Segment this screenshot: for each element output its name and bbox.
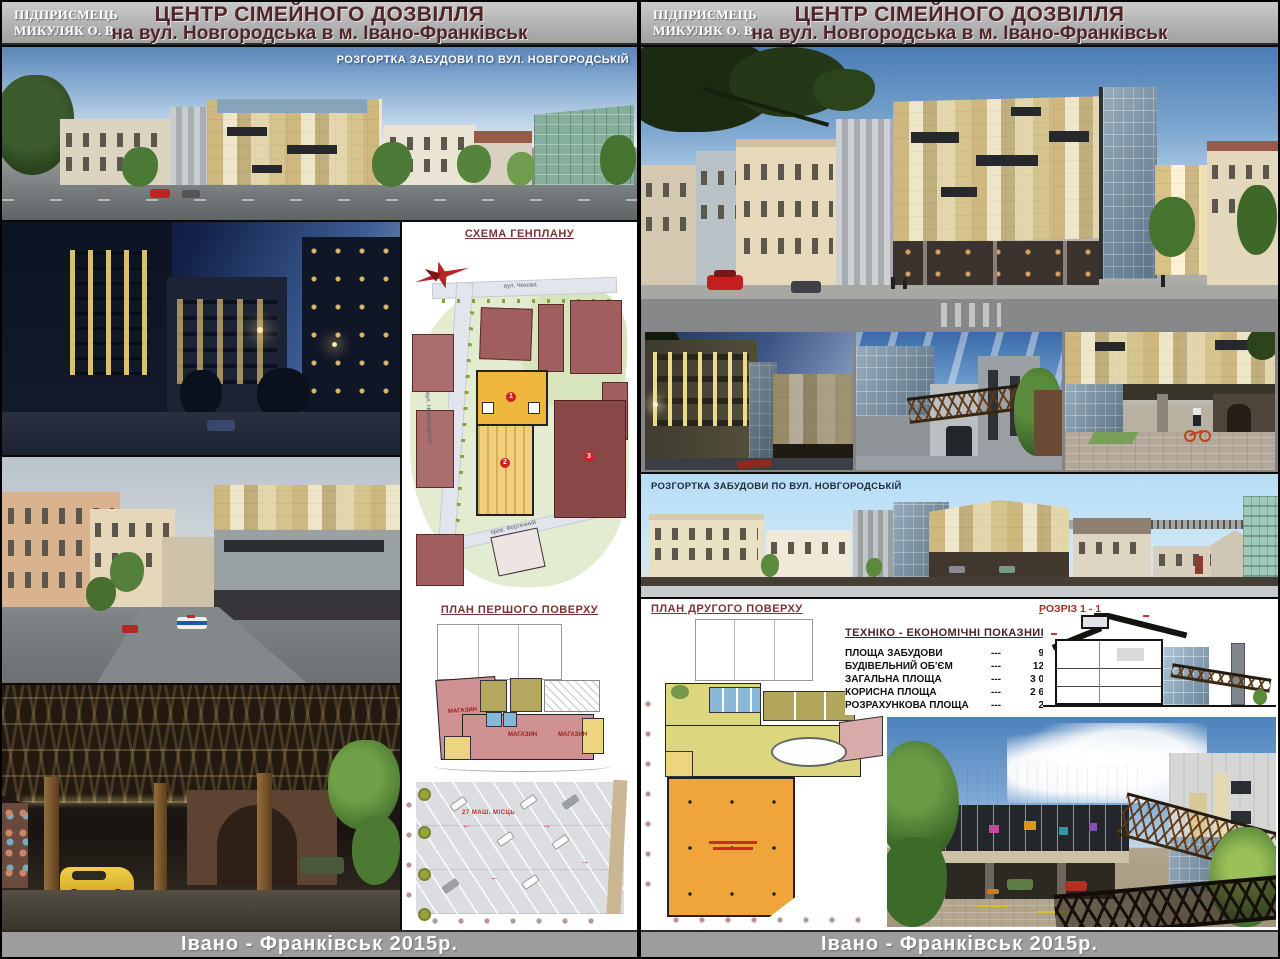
main-mosaic-facade xyxy=(893,96,1103,243)
ground-line xyxy=(1043,705,1276,707)
window-slot xyxy=(1095,342,1125,351)
render-street-view xyxy=(2,457,400,683)
tree xyxy=(418,788,431,801)
render-courtyard-bridge xyxy=(856,332,1062,470)
render-main-perspective xyxy=(641,47,1278,330)
person xyxy=(891,277,895,289)
entrance-zone xyxy=(893,241,1099,289)
foliage xyxy=(328,740,400,830)
elevation-caption: РОЗГОРТКА ЗАБУДОВИ ПО ВУЛ. НОВГОРОДСЬКІЙ xyxy=(651,481,902,492)
building-section xyxy=(1055,639,1163,705)
plan-marker: 2 xyxy=(500,458,510,468)
left-sheet: ПІДПРИЄМЕЦЬ МИКУЛЯК О. В. ЦЕНТР СІМЕЙНОГ… xyxy=(2,2,637,957)
classical-building xyxy=(766,530,851,577)
tree xyxy=(1247,332,1275,360)
city-block xyxy=(479,307,533,361)
site-plan: 1 2 3 вул. Чехова вул. Новгородська пров… xyxy=(402,242,637,602)
mansard-house xyxy=(1073,518,1151,577)
city-block xyxy=(538,304,564,372)
city-block xyxy=(416,410,454,488)
parked-car xyxy=(207,420,235,431)
first-floor-plan: МАГАЗИН МАГАЗИН МАГАЗИН 27 МАШ. МІСЦЬ ← … xyxy=(402,620,637,930)
left-footer: Івано - Франківськ 2015р. xyxy=(2,930,637,957)
ground xyxy=(856,456,1062,470)
mosaic-slab xyxy=(929,500,1069,554)
dimension-column xyxy=(406,790,412,910)
street-lamp-glow xyxy=(257,327,263,333)
dimension-column xyxy=(645,689,651,909)
street-label-top: вул. Чехова xyxy=(504,282,537,289)
tree xyxy=(418,826,431,839)
person xyxy=(903,278,907,289)
sill-band xyxy=(929,851,1129,863)
street-lamp-glow xyxy=(332,342,337,347)
car xyxy=(1007,879,1033,890)
window xyxy=(1231,781,1251,794)
window-slot xyxy=(287,145,337,154)
right-footer: Івано - Франківськ 2015р. xyxy=(641,930,1278,957)
cyclist xyxy=(1193,408,1201,426)
playground-equipment xyxy=(1059,827,1068,835)
section-drawing xyxy=(1043,613,1276,719)
poster-wall xyxy=(2,803,28,888)
car xyxy=(300,857,344,874)
pavement-band xyxy=(641,586,1278,597)
main-hall xyxy=(667,777,795,917)
render-canopy-view xyxy=(2,685,400,930)
playground-equipment xyxy=(1024,821,1036,830)
stair xyxy=(444,736,471,760)
city-block xyxy=(416,534,464,586)
window-slot xyxy=(1011,107,1041,116)
first-floor-title: ПЛАН ПЕРШОГО ПОВЕРХУ xyxy=(402,604,637,616)
right-sheet: ПІДПРИЄМЕЦЬ МИКУЛЯК О. В. ЦЕНТР СІМЕЙНОГ… xyxy=(641,2,1278,957)
historic-building xyxy=(736,139,841,287)
render-dusk-facade xyxy=(645,332,853,470)
foliage xyxy=(352,815,400,885)
wc-room xyxy=(503,712,517,727)
red-car xyxy=(1065,881,1087,891)
render-street-cyclist xyxy=(1065,332,1275,470)
plan-marker: 3 xyxy=(584,452,594,462)
red-car xyxy=(150,189,170,198)
classical-building xyxy=(649,514,764,577)
green-crosswalk xyxy=(1088,432,1139,444)
dimension-row xyxy=(422,918,612,924)
wc-room xyxy=(486,712,502,727)
stair xyxy=(665,751,693,777)
modern-building xyxy=(214,485,400,620)
yellow-marking xyxy=(977,905,1007,907)
elevation-caption: РОЗГОРТКА ЗАБУДОВИ ПО ВУЛ. НОВГОРОДСЬКІЙ xyxy=(337,54,629,66)
drawings-area: ПЛАН ДРУГОГО ПОВЕРХУ xyxy=(641,599,1278,930)
red-car xyxy=(122,625,138,633)
window-slot xyxy=(941,187,977,197)
playground-equipment xyxy=(989,825,999,833)
wooden-column xyxy=(44,777,59,902)
right-wing xyxy=(773,374,853,450)
tree xyxy=(418,868,431,881)
playground-equipment xyxy=(1089,823,1097,831)
window-band xyxy=(929,805,1129,851)
project-parking xyxy=(476,424,534,516)
genplan-title: СХЕМА ГЕНПЛАНУ xyxy=(402,228,637,240)
plants xyxy=(671,685,689,699)
road-marking xyxy=(2,199,637,201)
room-label: МАГАЗИН xyxy=(508,732,537,738)
flow-arrow: ← xyxy=(462,820,471,830)
metal-facade xyxy=(836,119,898,287)
city-block xyxy=(570,300,622,374)
window-slot xyxy=(976,155,1038,166)
room-label: МАГАЗИН xyxy=(558,732,587,738)
ground xyxy=(2,890,400,930)
street xyxy=(2,412,400,455)
board-subtitle: на вул. Новгородська в м. Івано-Франківс… xyxy=(641,23,1278,45)
render-street-elevation-day: РОЗГОРТКА ЗАБУДОВИ ПО ВУЛ. НОВГОРОДСЬКІЙ xyxy=(2,47,637,220)
wooden-column xyxy=(257,773,272,903)
flow-arrow: → xyxy=(580,856,589,866)
presentation-board: ПІДПРИЄМЕЦЬ МИКУЛЯК О. В. ЦЕНТР СІМЕЙНОГ… xyxy=(0,0,1280,959)
person xyxy=(1161,275,1165,287)
red-car xyxy=(707,275,743,290)
service-room xyxy=(510,678,542,712)
car xyxy=(182,190,200,198)
existing-building-outline xyxy=(695,619,813,681)
office-rooms xyxy=(763,691,855,721)
dimension-row xyxy=(663,917,863,923)
board-subtitle: на вул. Новгородська в м. Івано-Франківс… xyxy=(2,23,637,45)
service-room xyxy=(480,680,507,712)
right-header: ПІДПРИЄМЕЦЬ МИКУЛЯК О. В. ЦЕНТР СІМЕЙНОГ… xyxy=(641,2,1278,45)
metal-facade xyxy=(170,107,210,185)
police-car xyxy=(177,617,207,629)
level-mark xyxy=(1143,615,1149,617)
canopy-line xyxy=(432,760,612,772)
tree xyxy=(1253,689,1267,705)
scooter xyxy=(987,889,999,894)
window-slot xyxy=(227,127,267,136)
plan-marker: 1 xyxy=(506,392,516,402)
render-bridge-courtyard xyxy=(887,717,1276,927)
street-elevation-strip: РОЗГОРТКА ЗАБУДОВИ ПО ВУЛ. НОВГОРОДСЬКІЙ xyxy=(641,474,1278,597)
under-opening xyxy=(929,552,1069,577)
window-slot xyxy=(911,132,959,143)
footer-text: Івано - Франківськ 2015р. xyxy=(181,933,458,955)
clerestory xyxy=(1081,615,1109,629)
window-slot xyxy=(1049,131,1089,142)
bar-counter xyxy=(771,737,847,767)
city-block xyxy=(412,334,454,392)
footer-text: Івано - Франківськ 2015р. xyxy=(821,933,1098,955)
render-night-view xyxy=(2,222,400,455)
glass-tower xyxy=(1099,87,1157,279)
ground-band xyxy=(641,577,1278,586)
hatched-area xyxy=(544,680,600,712)
window-slot xyxy=(252,165,282,173)
tree-silhouette xyxy=(813,69,875,111)
teal-building xyxy=(1243,496,1278,577)
left-header: ПІДПРИЄМЕЦЬ МИКУЛЯК О. В. ЦЕНТР СІМЕЙНОГ… xyxy=(2,2,637,45)
street-lamp-glow xyxy=(653,402,658,407)
car xyxy=(791,281,821,293)
flow-arrow: → xyxy=(542,820,551,830)
crosswalk xyxy=(941,303,1001,327)
drawings-column: СХЕМА ГЕНПЛАНУ xyxy=(402,222,637,930)
car xyxy=(97,188,113,196)
bronze-building xyxy=(645,340,757,462)
wooden-column xyxy=(154,783,167,903)
flow-arrow: ← xyxy=(490,872,499,882)
small-building xyxy=(162,537,222,607)
second-floor-title: ПЛАН ДРУГОГО ПОВЕРХУ xyxy=(651,603,803,615)
existing-building-outline xyxy=(437,624,562,680)
parking-note: 27 МАШ. МІСЦЬ xyxy=(462,810,515,816)
wc-stalls xyxy=(709,687,761,713)
level-mark xyxy=(1051,633,1057,635)
